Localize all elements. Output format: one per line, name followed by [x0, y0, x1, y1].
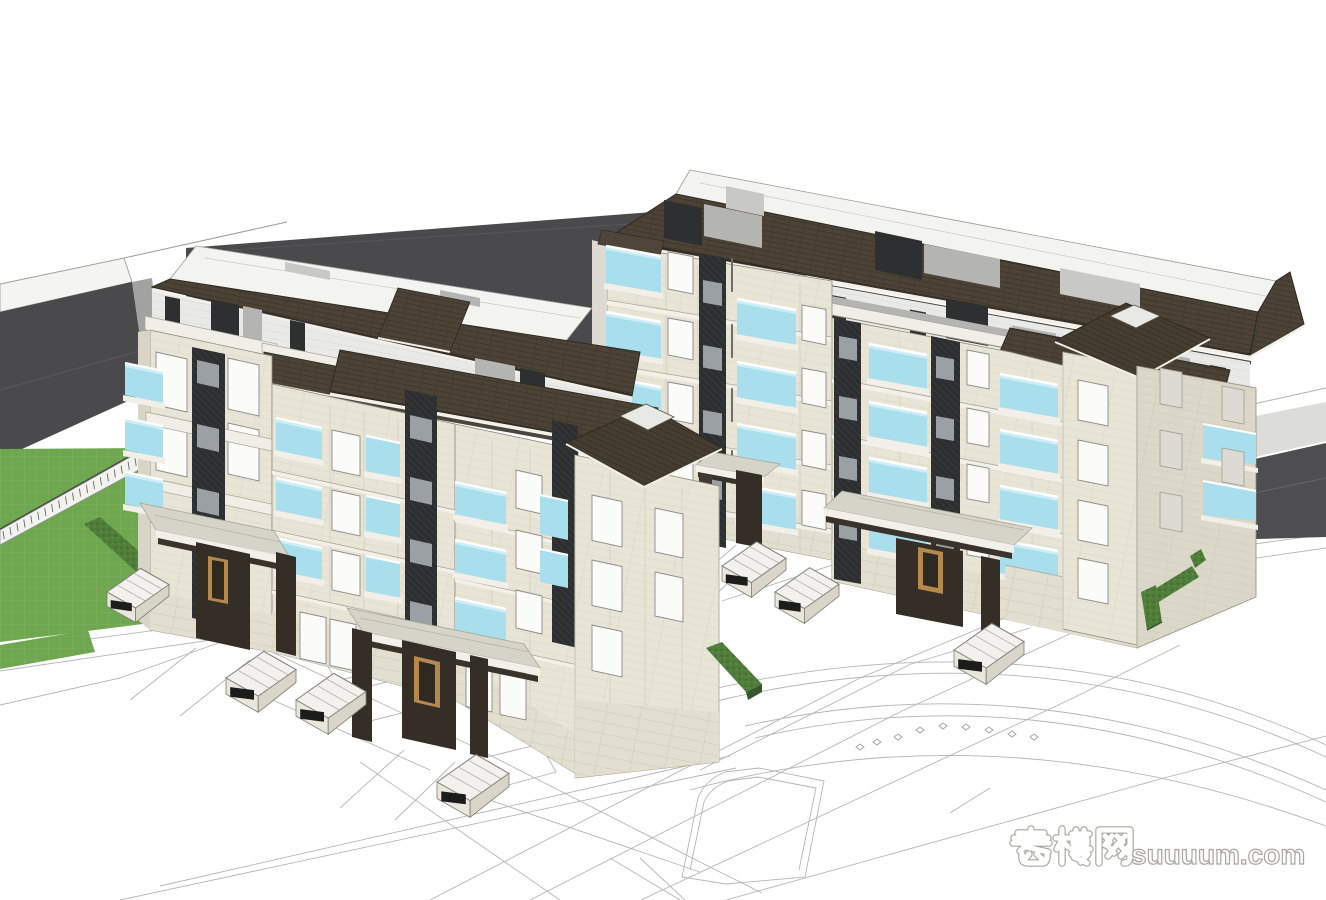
- svg-text:suuuum.com: suuuum.com: [1131, 839, 1305, 870]
